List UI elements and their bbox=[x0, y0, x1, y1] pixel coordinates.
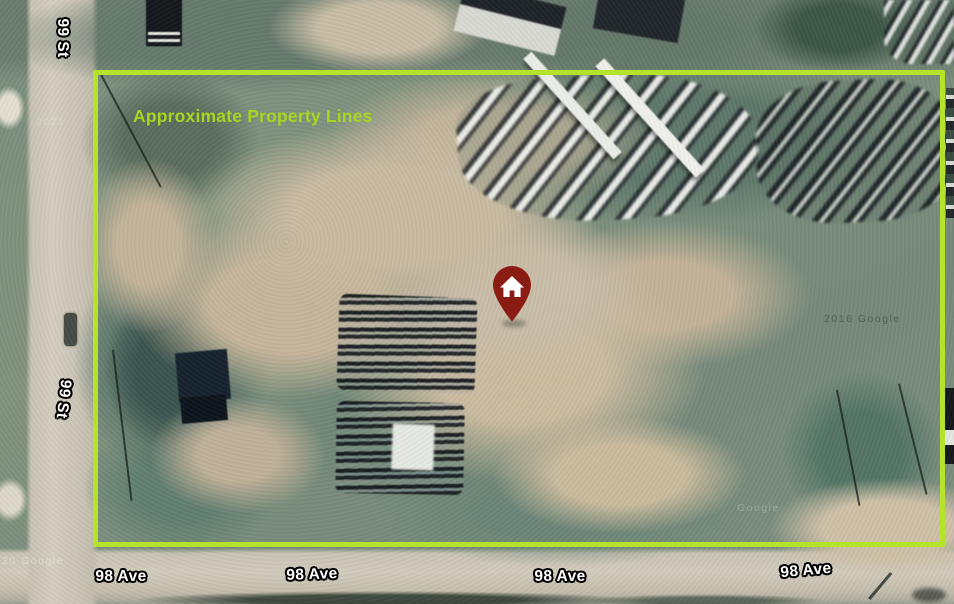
map-viewport[interactable]: Approximate Property Lines 99 St 99 St 9… bbox=[0, 0, 954, 604]
watermark-google: Google bbox=[737, 502, 780, 514]
street-label-98ave-2: 98 Ave bbox=[286, 565, 338, 585]
watermark-google: 20 Google bbox=[2, 555, 64, 567]
ground-shadow bbox=[912, 588, 946, 602]
edge-trailers bbox=[946, 88, 954, 218]
home-pin-icon bbox=[492, 265, 532, 323]
home-pin bbox=[492, 265, 532, 323]
street-label-98ave-1: 98 Ave bbox=[95, 568, 146, 586]
property-lines-label: Approximate Property Lines bbox=[133, 106, 373, 127]
watermark-year: 2021 bbox=[36, 116, 65, 128]
watermark-google: 2016 Google bbox=[824, 313, 901, 325]
street-label-99st-top: 99 St bbox=[53, 18, 71, 57]
truck-cargo-stripes bbox=[148, 32, 180, 46]
street-label-98ave-3: 98 Ave bbox=[534, 568, 585, 586]
trailer-cluster-corner bbox=[884, 0, 954, 64]
parked-car bbox=[64, 313, 77, 346]
edge-trailers bbox=[944, 388, 954, 464]
